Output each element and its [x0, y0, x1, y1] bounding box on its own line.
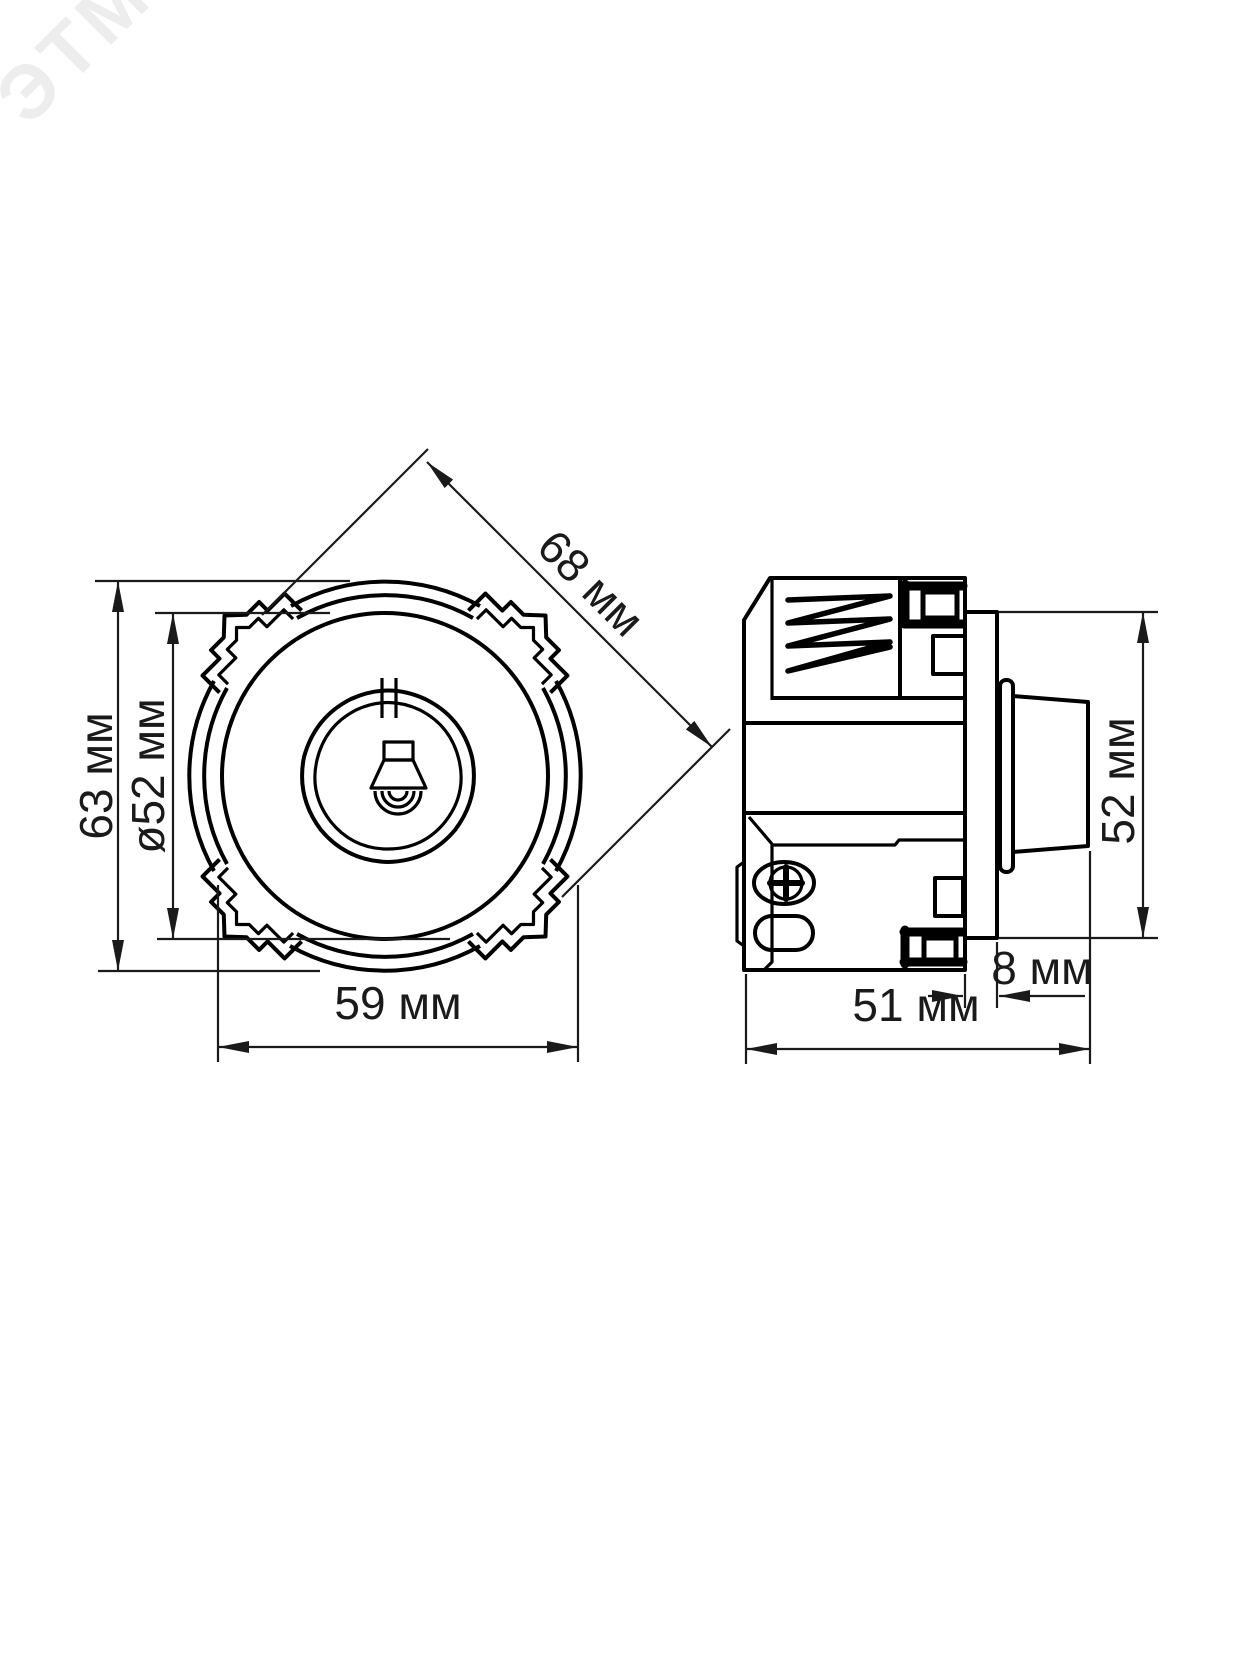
knob-side-profile — [1013, 696, 1088, 852]
dim-52mm-label: 52 мм — [1092, 717, 1144, 844]
mounting-claw — [183, 859, 301, 977]
dim-68mm: 68 мм — [262, 449, 730, 897]
dim-59mm-label: 59 мм — [334, 977, 461, 1029]
watermark-text: ЭТМ — [0, 0, 169, 140]
lamp-icon — [371, 742, 426, 814]
technical-drawing-page: ЭТМ — [0, 0, 1240, 1653]
dim-51mm-label: 51 мм — [852, 979, 979, 1031]
trim-ring — [189, 582, 580, 971]
dim-52d-label: ø52 мм — [122, 698, 174, 853]
rotary-knob — [302, 678, 474, 862]
dim-knob-diameter: ø52 мм — [122, 613, 450, 939]
watermark-logo: ЭТМ — [0, 0, 225, 140]
mounting-claws — [183, 574, 586, 977]
dimmer-dimension-drawing: ЭТМ — [0, 0, 1240, 1653]
face-circle — [222, 613, 548, 939]
front-view: 63 мм ø52 мм 59 мм 68 мм — [70, 449, 730, 1062]
knob-indicator-notch — [382, 678, 396, 718]
mounting-plate — [965, 612, 997, 938]
dim-63mm: 63 мм — [70, 581, 350, 971]
dim-8mm-label: 8 мм — [991, 942, 1093, 994]
side-view: 52 мм 8 мм 51 мм — [737, 578, 1158, 1064]
dim-59mm: 59 мм — [218, 885, 578, 1062]
mounting-claw — [468, 859, 586, 977]
dim-63mm-label: 63 мм — [70, 712, 122, 839]
